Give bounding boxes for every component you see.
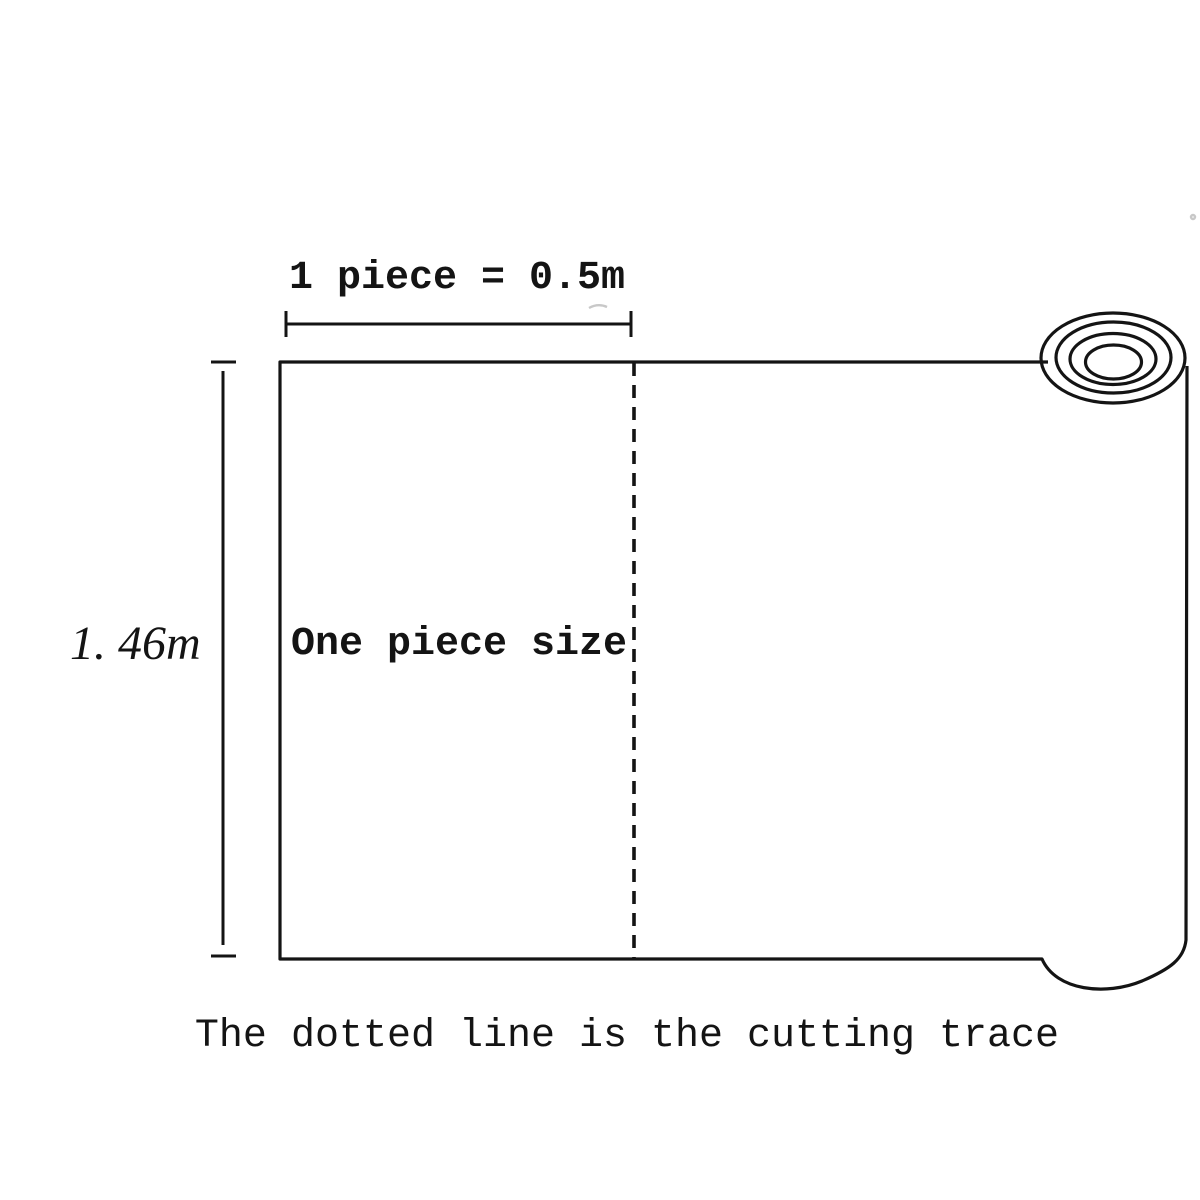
caption-text: The dotted line is the cutting trace [195,1014,1059,1059]
left-dimension: 1. 46m [70,362,236,956]
roll-ring-outer [1041,313,1185,403]
fabric-sheet-outline [280,362,1187,989]
roll-ring-inner [1086,345,1142,379]
top-dimension: 1 piece = 0.5m [286,256,631,337]
top-dimension-label: 1 piece = 0.5m [289,256,625,301]
roll-ring-3 [1070,334,1156,385]
left-dimension-label: 1. 46m [70,617,201,670]
diagram-canvas: 1 piece = 0.5m 1. 46m One piece size The… [0,0,1200,1200]
roll-end-icon [1041,313,1185,403]
scan-artifact-tilde [589,305,607,308]
piece-size-label: One piece size [291,622,627,667]
scan-artifact-dot [1191,215,1195,219]
fabric-roll-diagram: 1 piece = 0.5m 1. 46m One piece size The… [0,0,1200,1200]
